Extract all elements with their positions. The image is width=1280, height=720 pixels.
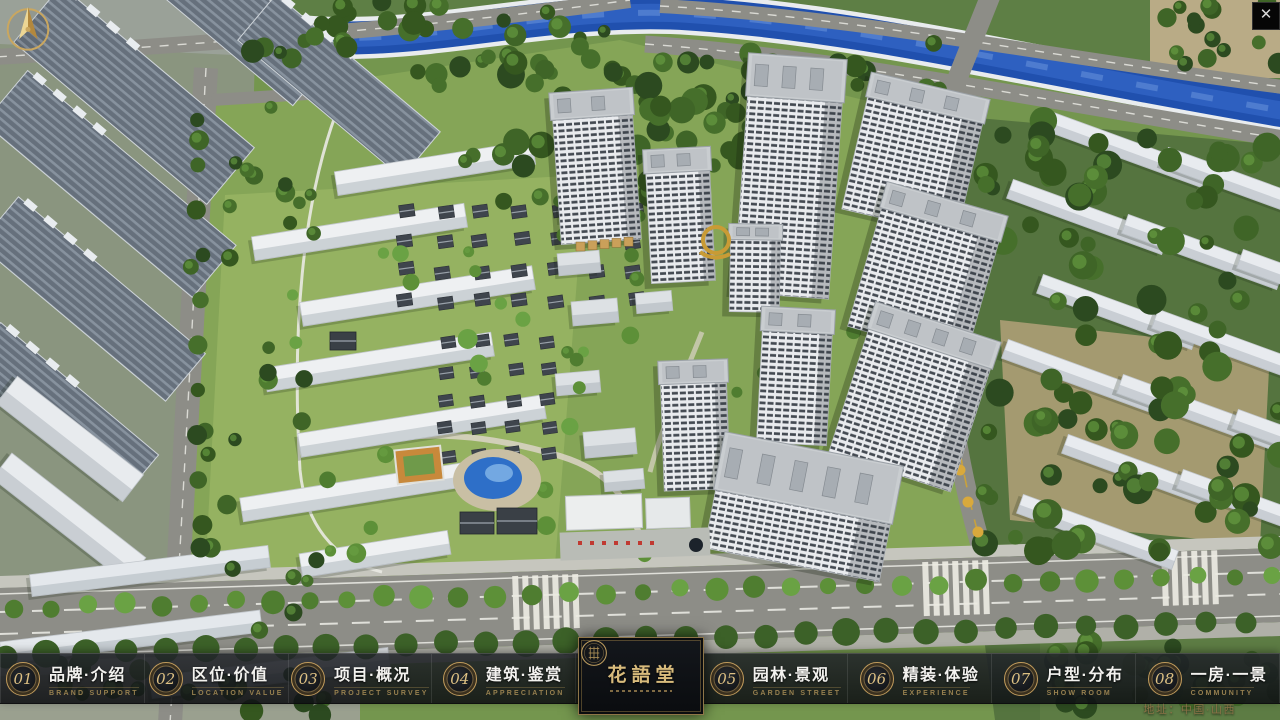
menu-label-zh: 精装·体验	[903, 661, 980, 685]
menu-label-zh: 建筑·鉴赏	[486, 661, 563, 685]
menu-item-location[interactable]: 02 区位·价值 LOCATION VALUE	[145, 654, 289, 703]
logo-seal-icon	[579, 638, 609, 668]
menu-label-zh: 园林·景观	[753, 661, 830, 685]
menu-label-zh: 项目·概况	[334, 661, 411, 685]
menu-label-en: SHOW ROOM	[1047, 687, 1112, 697]
menu-item-project[interactable]: 03 项目·概况 PROJECT SURVEY	[289, 654, 433, 703]
menu-number-badge: 04	[443, 662, 477, 696]
menu-label-zh: 一房·一景	[1191, 661, 1268, 685]
menu-label-zh: 区位·价值	[192, 661, 269, 685]
menu-labels: 建筑·鉴赏 APPRECIATION	[486, 661, 565, 697]
menu-label-en: BRAND SUPPORT	[49, 687, 139, 697]
menu-item-brand[interactable]: 01 品牌·介绍 BRAND SUPPORT	[0, 654, 145, 703]
menu-number-badge: 07	[1004, 662, 1038, 696]
menu-group-left: 01 品牌·介绍 BRAND SUPPORT 02 区位·价值 LOCATION…	[0, 654, 576, 703]
presentation-stage: ✕ 01 品牌·介绍 BRAND SUPPORT 02 区位·价值 LOCATI…	[0, 0, 1280, 720]
close-button[interactable]: ✕	[1252, 2, 1280, 30]
menu-label-en: COMMUNITY	[1191, 687, 1254, 697]
menu-label-en: APPRECIATION	[486, 687, 565, 697]
menu-number-badge: 08	[1148, 662, 1182, 696]
menu-labels: 品牌·介绍 BRAND SUPPORT	[49, 661, 139, 697]
menu-number-badge: 01	[6, 662, 40, 696]
project-logo-panel[interactable]: 花語堂	[578, 637, 704, 715]
menu-number-badge: 02	[149, 662, 183, 696]
menu-number-badge: 06	[860, 662, 894, 696]
menu-label-zh: 户型·分布	[1047, 661, 1124, 685]
menu-labels: 园林·景观 GARDEN STREET	[753, 661, 842, 697]
address-text: 地址：中国·山西	[1143, 701, 1236, 717]
menu-label-en: GARDEN STREET	[753, 687, 842, 697]
menu-label-zh: 品牌·介绍	[49, 661, 126, 685]
menu-group-right: 05 园林·景观 GARDEN STREET 06 精装·体验 EXPERIEN…	[704, 654, 1280, 703]
menu-item-architecture[interactable]: 04 建筑·鉴赏 APPRECIATION	[432, 654, 576, 703]
menu-labels: 一房·一景 COMMUNITY	[1191, 661, 1268, 697]
menu-number-badge: 03	[291, 662, 325, 696]
menu-number-badge: 05	[710, 662, 744, 696]
menu-labels: 项目·概况 PROJECT SURVEY	[334, 661, 428, 697]
menu-item-interior[interactable]: 06 精装·体验 EXPERIENCE	[848, 654, 992, 703]
menu-item-floorplan[interactable]: 07 户型·分布 SHOW ROOM	[992, 654, 1136, 703]
menu-labels: 区位·价值 LOCATION VALUE	[192, 661, 284, 697]
menu-item-views[interactable]: 08 一房·一景 COMMUNITY	[1136, 654, 1280, 703]
menu-labels: 户型·分布 SHOW ROOM	[1047, 661, 1124, 697]
masterplan-render	[0, 0, 1280, 720]
menu-item-garden[interactable]: 05 园林·景观 GARDEN STREET	[704, 654, 848, 703]
project-name: 花語堂	[607, 660, 679, 687]
menu-labels: 精装·体验 EXPERIENCE	[903, 661, 980, 697]
menu-label-en: EXPERIENCE	[903, 687, 970, 697]
menu-label-en: PROJECT SURVEY	[334, 687, 428, 697]
menu-label-en: LOCATION VALUE	[192, 687, 284, 697]
logo-tagline-rule	[610, 690, 672, 692]
